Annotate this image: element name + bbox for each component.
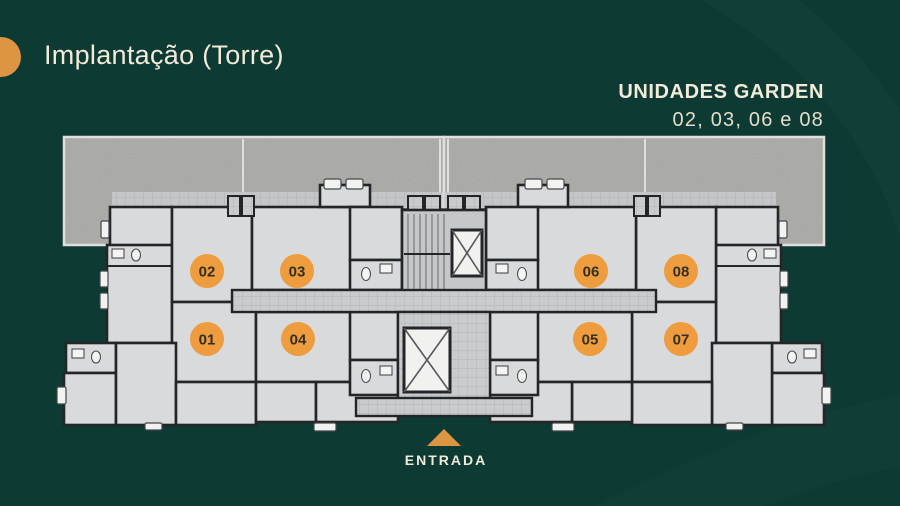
legend-subtitle: 02, 03, 06 e 08: [618, 109, 824, 132]
svg-text:02: 02: [199, 264, 216, 281]
header-accent-dot: [0, 37, 21, 77]
entry-walk: [356, 398, 532, 416]
floor-plan-canvas: 0102030405060708: [0, 0, 900, 506]
svg-text:04: 04: [290, 332, 307, 349]
svg-text:03: 03: [289, 264, 306, 281]
unit-badge-08: 08: [664, 254, 698, 288]
entrance-label: ENTRADA: [374, 452, 518, 468]
floor-plan-left-half: [57, 137, 444, 431]
unit-badge-07: 07: [664, 322, 698, 356]
svg-text:05: 05: [582, 332, 599, 349]
unit-badge-02: 02: [190, 254, 224, 288]
floor-plan-right-half: [444, 137, 831, 431]
svg-text:06: 06: [583, 264, 600, 281]
unit-badge-03: 03: [280, 254, 314, 288]
svg-text:08: 08: [673, 264, 690, 281]
unit-badge-04: 04: [281, 322, 315, 356]
unit-badge-05: 05: [573, 322, 607, 356]
decor-curve-bottom-right: [540, 425, 900, 506]
svg-text:07: 07: [673, 332, 690, 349]
legend-title: UNIDADES GARDEN: [618, 81, 824, 104]
unit-badge-06: 06: [574, 254, 608, 288]
page-title: Implantação (Torre): [44, 40, 284, 71]
corridor: [232, 290, 656, 312]
entrance-arrow-icon: [427, 429, 461, 446]
slide: 0102030405060708 Implantação (Torre) UNI…: [0, 0, 900, 506]
svg-text:01: 01: [199, 332, 216, 349]
legend: UNIDADES GARDEN 02, 03, 06 e 08: [618, 81, 824, 132]
unit-badge-01: 01: [190, 322, 224, 356]
